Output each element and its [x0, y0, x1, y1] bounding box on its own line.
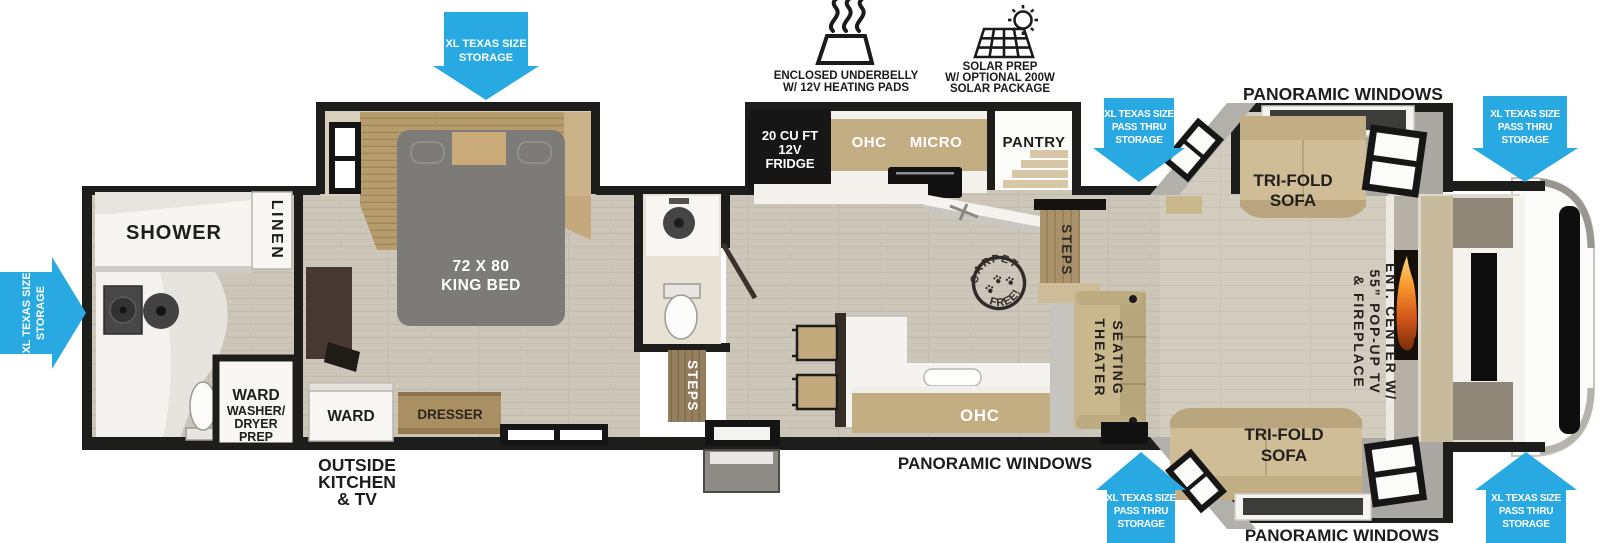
- svg-text:PANORAMIC WINDOWS: PANORAMIC WINDOWS: [1243, 84, 1443, 104]
- svg-text:& FIREPLACE: & FIREPLACE: [1351, 275, 1367, 388]
- svg-text:SOFA: SOFA: [1270, 191, 1316, 210]
- svg-text:THEATER: THEATER: [1092, 318, 1108, 397]
- svg-text:SOLAR PACKAGE: SOLAR PACKAGE: [950, 83, 1050, 95]
- svg-text:XL TEXAS SIZE: XL TEXAS SIZE: [1106, 493, 1176, 504]
- svg-text:55” POP-UP TV: 55” POP-UP TV: [1367, 269, 1383, 394]
- svg-text:STEPS: STEPS: [1059, 224, 1074, 276]
- svg-text:20 CU FT: 20 CU FT: [762, 128, 818, 143]
- svg-text:OHC: OHC: [852, 134, 887, 151]
- svg-text:PANORAMIC WINDOWS: PANORAMIC WINDOWS: [1245, 526, 1439, 543]
- svg-text:XL TEXAS SIZE: XL TEXAS SIZE: [21, 272, 33, 353]
- svg-text:PANORAMIC WINDOWS: PANORAMIC WINDOWS: [898, 454, 1092, 473]
- svg-text:ENCLOSED UNDERBELLY: ENCLOSED UNDERBELLY: [774, 70, 919, 82]
- svg-text:XL TEXAS SIZE: XL TEXAS SIZE: [445, 38, 526, 50]
- svg-text:PANTRY: PANTRY: [1003, 134, 1066, 151]
- svg-text:KING BED: KING BED: [441, 277, 521, 294]
- svg-text:DRYER: DRYER: [234, 417, 277, 431]
- svg-text:MICRO: MICRO: [910, 134, 963, 151]
- svg-text:STORAGE: STORAGE: [1115, 135, 1163, 146]
- svg-text:W/ 12V HEATING PADS: W/ 12V HEATING PADS: [783, 82, 909, 94]
- svg-text:XL TEXAS SIZE: XL TEXAS SIZE: [1491, 493, 1561, 504]
- svg-text:SOFA: SOFA: [1261, 446, 1307, 465]
- svg-text:12V: 12V: [778, 142, 801, 157]
- svg-text:LINEN: LINEN: [268, 200, 285, 261]
- svg-text:XL TEXAS SIZE: XL TEXAS SIZE: [1490, 109, 1560, 120]
- svg-text:PASS THRU: PASS THRU: [1499, 506, 1553, 517]
- svg-text:SEATING: SEATING: [1110, 320, 1126, 395]
- svg-text:SHOWER: SHOWER: [126, 222, 222, 244]
- svg-text:WARD: WARD: [327, 408, 374, 425]
- svg-text:STORAGE: STORAGE: [35, 286, 47, 340]
- svg-text:STORAGE: STORAGE: [1502, 519, 1550, 530]
- svg-text:STORAGE: STORAGE: [1117, 519, 1165, 530]
- svg-text:ENT. CENTER W/: ENT. CENTER W/: [1383, 263, 1399, 401]
- svg-text:WARD: WARD: [232, 387, 279, 404]
- svg-text:XL TEXAS SIZE: XL TEXAS SIZE: [1104, 109, 1174, 120]
- svg-text:PASS THRU: PASS THRU: [1112, 122, 1166, 133]
- svg-text:TRI-FOLD: TRI-FOLD: [1253, 171, 1332, 190]
- svg-text:STORAGE: STORAGE: [459, 52, 513, 64]
- svg-text:72 X 80: 72 X 80: [453, 258, 510, 275]
- svg-text:STORAGE: STORAGE: [1501, 135, 1549, 146]
- svg-text:PASS THRU: PASS THRU: [1114, 506, 1168, 517]
- svg-text:FRIDGE: FRIDGE: [765, 156, 814, 171]
- svg-text:OHC: OHC: [960, 407, 1000, 425]
- svg-text:STEPS: STEPS: [685, 360, 700, 412]
- svg-text:& TV: & TV: [337, 489, 377, 509]
- svg-text:PREP: PREP: [239, 430, 273, 444]
- svg-text:WASHER/: WASHER/: [227, 404, 286, 418]
- svg-text:PASS THRU: PASS THRU: [1498, 122, 1552, 133]
- svg-text:TRI-FOLD: TRI-FOLD: [1244, 425, 1323, 444]
- svg-text:DRESSER: DRESSER: [417, 407, 483, 422]
